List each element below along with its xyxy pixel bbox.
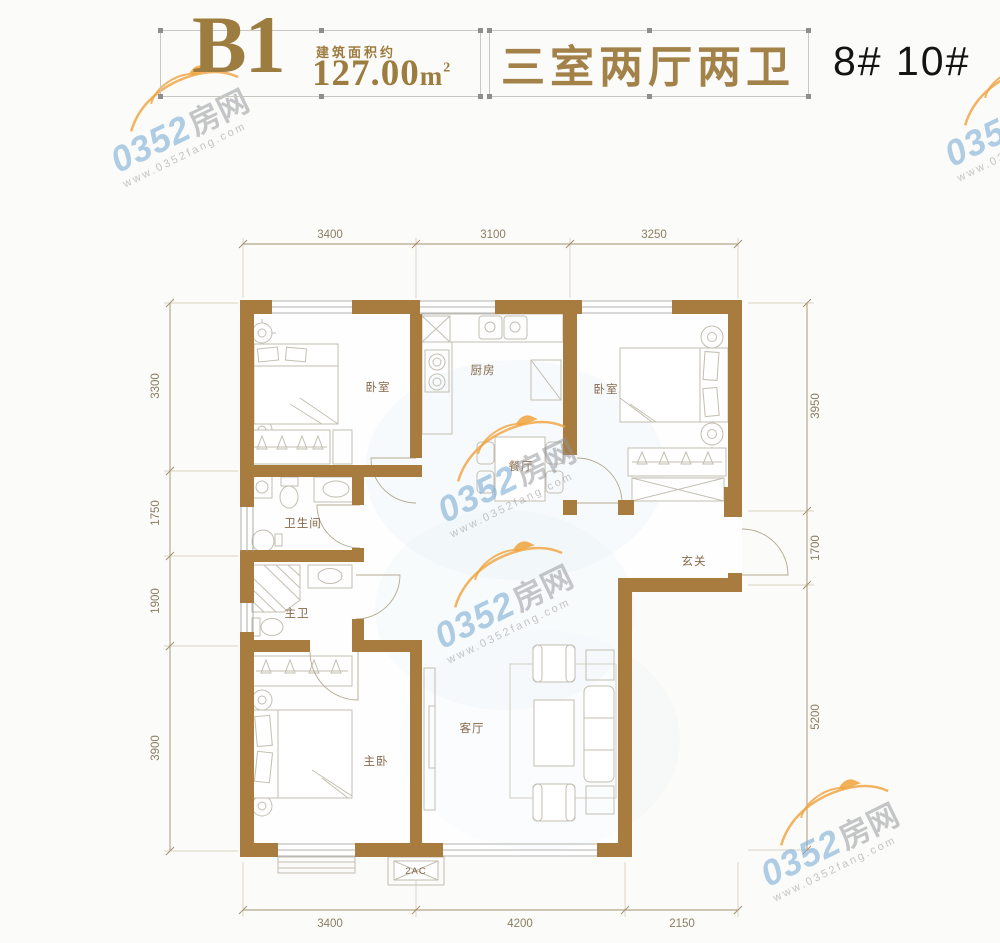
plan-code: B1 bbox=[192, 4, 312, 86]
room-label-bedroom2: 卧室 bbox=[594, 382, 619, 396]
room-label-bedroom1: 卧室 bbox=[366, 380, 391, 394]
building-numbers: 8# 10# bbox=[833, 38, 970, 85]
room-label-entry: 玄关 bbox=[682, 554, 707, 568]
dim-bottom-1: 3400 bbox=[317, 918, 343, 930]
dim-bottom-2: 4200 bbox=[507, 918, 533, 930]
dim-top-1: 3400 bbox=[317, 229, 343, 241]
room-label-ac: 2AC bbox=[405, 866, 426, 877]
area-superscript: 2 bbox=[443, 61, 451, 76]
area-unit: m bbox=[420, 61, 444, 91]
dim-top-3: 3250 bbox=[641, 229, 667, 241]
layout-title: 三室两厅两卫 bbox=[489, 30, 807, 96]
dim-top-2: 3100 bbox=[480, 229, 506, 241]
floorplan-drawing: 3400 3100 3250 3300 1750 1900 3900 3950 … bbox=[0, 0, 1000, 943]
room-label-kitchen: 厨房 bbox=[471, 364, 496, 377]
bay-window bbox=[278, 857, 355, 873]
dim-left-4: 3900 bbox=[150, 735, 162, 761]
room-label-master-bedroom: 主卧 bbox=[364, 755, 389, 768]
room-label-dining: 餐厅 bbox=[509, 459, 534, 473]
room-label-living: 客厅 bbox=[460, 721, 485, 735]
dim-bottom-3: 2150 bbox=[669, 918, 695, 930]
dim-left-2: 1750 bbox=[150, 500, 162, 526]
dim-left-3: 1900 bbox=[150, 588, 162, 614]
area-value: 127.00m2 bbox=[312, 52, 451, 95]
dim-right-2: 1700 bbox=[810, 535, 822, 561]
floorplan-page: 3400 3100 3250 3300 1750 1900 3900 3950 … bbox=[0, 0, 1000, 943]
master-bedroom-furniture bbox=[252, 656, 352, 816]
dim-left-1: 3300 bbox=[150, 373, 162, 399]
room-label-master-bath: 主卫 bbox=[285, 607, 310, 620]
area-number: 127.00 bbox=[312, 53, 420, 94]
bedroom2-furniture bbox=[620, 326, 728, 501]
entry-door bbox=[742, 529, 788, 575]
room-label-bathroom: 卫生间 bbox=[284, 516, 322, 530]
dim-right-3: 5200 bbox=[810, 704, 822, 730]
dim-right-1: 3950 bbox=[810, 393, 822, 419]
